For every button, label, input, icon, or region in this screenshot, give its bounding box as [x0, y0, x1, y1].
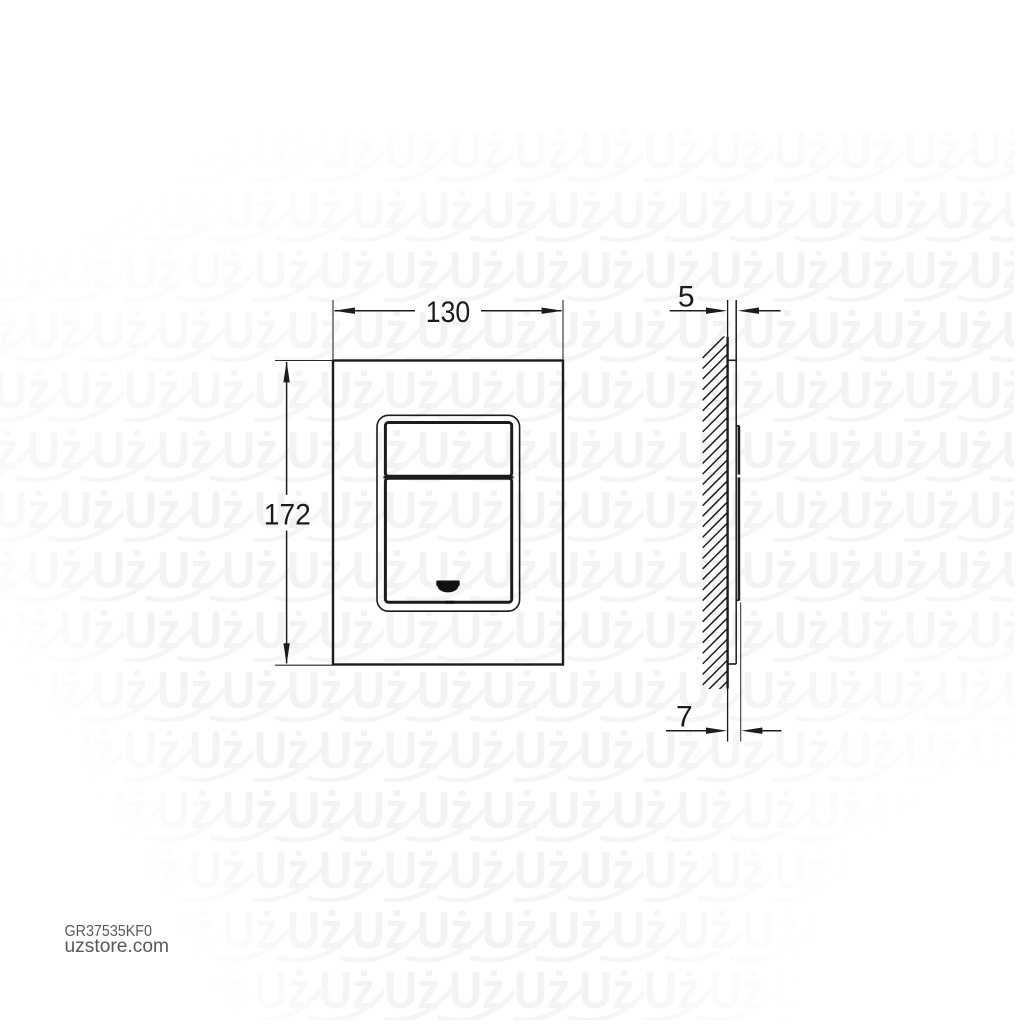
- svg-text:7: 7: [676, 700, 693, 733]
- svg-text:uzstore.com: uzstore.com: [65, 935, 170, 957]
- svg-text:5: 5: [678, 280, 695, 313]
- svg-text:172: 172: [264, 499, 311, 532]
- svg-text:130: 130: [426, 296, 471, 329]
